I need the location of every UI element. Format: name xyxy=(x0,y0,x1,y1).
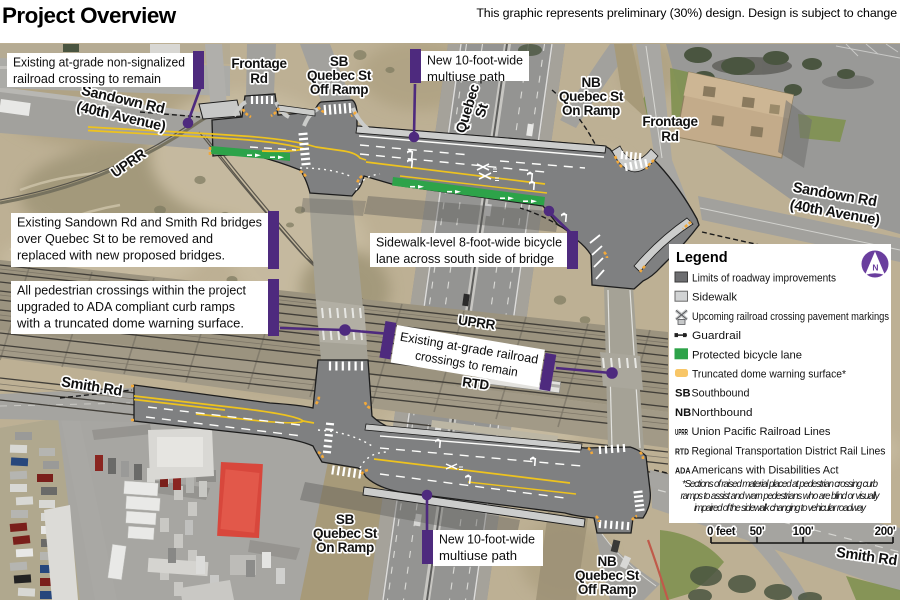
svg-text:Truncated dome warning surface: Truncated dome warning surface* xyxy=(692,369,847,381)
svg-text:multiuse path: multiuse path xyxy=(439,549,517,563)
svg-text:railroad crossing to remain: railroad crossing to remain xyxy=(13,72,161,86)
svg-text:50': 50' xyxy=(750,526,765,538)
svg-text:NB: NB xyxy=(598,554,617,569)
svg-text:0 feet: 0 feet xyxy=(707,526,736,538)
svg-text:with a truncated dome warning: with a truncated dome warning surface. xyxy=(16,317,244,331)
svg-text:Frontage: Frontage xyxy=(231,56,287,71)
svg-text:Limits of roadway improvements: Limits of roadway improvements xyxy=(692,273,836,285)
svg-text:Existing Sandown Rd and Smith: Existing Sandown Rd and Smith Rd bridges xyxy=(17,216,262,230)
svg-text:ramps to assist and warn pedes: ramps to assist and warn pedestrians who… xyxy=(681,491,881,502)
svg-text:Existing at-grade non-signaliz: Existing at-grade non-signalized xyxy=(13,56,185,70)
svg-text:Quebec St: Quebec St xyxy=(559,89,624,104)
svg-text:Union Pacific Railroad Lines: Union Pacific Railroad Lines xyxy=(692,426,831,438)
svg-text:200': 200' xyxy=(875,526,896,538)
svg-text:Off Ramp: Off Ramp xyxy=(578,582,636,597)
svg-text:ADA: ADA xyxy=(675,466,691,476)
svg-text:New 10-foot-wide: New 10-foot-wide xyxy=(439,533,535,547)
svg-text:Off Ramp: Off Ramp xyxy=(310,82,368,97)
svg-text:Guardrail: Guardrail xyxy=(692,330,741,342)
svg-text:All pedestrian crossings withi: All pedestrian crossings within the proj… xyxy=(17,284,246,298)
svg-text:multiuse path: multiuse path xyxy=(427,70,505,84)
svg-text:Northbound: Northbound xyxy=(692,407,753,419)
svg-text:Protected bicycle lane: Protected bicycle lane xyxy=(692,349,802,361)
svg-text:impaired of the sidewalk chang: impaired of the sidewalk changing to veh… xyxy=(694,503,867,514)
svg-text:Americans with Disabilities Ac: Americans with Disabilities Act xyxy=(692,465,840,477)
svg-text:UPRR: UPRR xyxy=(675,427,688,437)
svg-text:lane across south side of brid: lane across south side of bridge xyxy=(376,252,554,266)
svg-text:upgraded to ADA compliant curb: upgraded to ADA compliant curb ramps xyxy=(17,300,235,314)
svg-text:*Sections of raised material p: *Sections of raised material placed at p… xyxy=(682,479,879,490)
svg-text:RTD: RTD xyxy=(675,446,689,456)
svg-text:NB: NB xyxy=(582,75,601,90)
svg-text:Sidewalk-level 8-foot-wide bic: Sidewalk-level 8-foot-wide bicycle xyxy=(376,236,562,250)
svg-text:Rd: Rd xyxy=(250,71,267,86)
svg-text:Sidewalk: Sidewalk xyxy=(692,292,737,304)
svg-text:100': 100' xyxy=(793,526,814,538)
svg-text:Legend: Legend xyxy=(676,250,728,266)
svg-text:Quebec St: Quebec St xyxy=(575,568,640,583)
svg-text:SB: SB xyxy=(330,54,349,69)
svg-text:Regional Transportation Distri: Regional Transportation District Rail Li… xyxy=(692,445,886,457)
svg-text:over Quebec St to be removed a: over Quebec St to be removed and xyxy=(17,232,213,246)
svg-text:Quebec St: Quebec St xyxy=(307,68,372,83)
svg-text:N: N xyxy=(872,263,878,273)
svg-text:Upcoming railroad crossing pav: Upcoming railroad crossing pavement mark… xyxy=(692,311,889,323)
svg-text:New 10-foot-wide: New 10-foot-wide xyxy=(427,54,523,68)
svg-text:Southbound: Southbound xyxy=(692,388,750,400)
svg-text:On Ramp: On Ramp xyxy=(562,103,620,118)
svg-text:On Ramp: On Ramp xyxy=(316,540,374,555)
svg-text:NB: NB xyxy=(675,407,691,419)
svg-text:SB: SB xyxy=(336,512,355,527)
svg-text:replaced with new proposed bri: replaced with new proposed bridges. xyxy=(17,249,225,263)
svg-text:SB: SB xyxy=(675,388,691,400)
svg-text:Quebec St: Quebec St xyxy=(313,526,378,541)
svg-text:Frontage: Frontage xyxy=(642,114,698,129)
svg-text:Rd: Rd xyxy=(661,129,678,144)
